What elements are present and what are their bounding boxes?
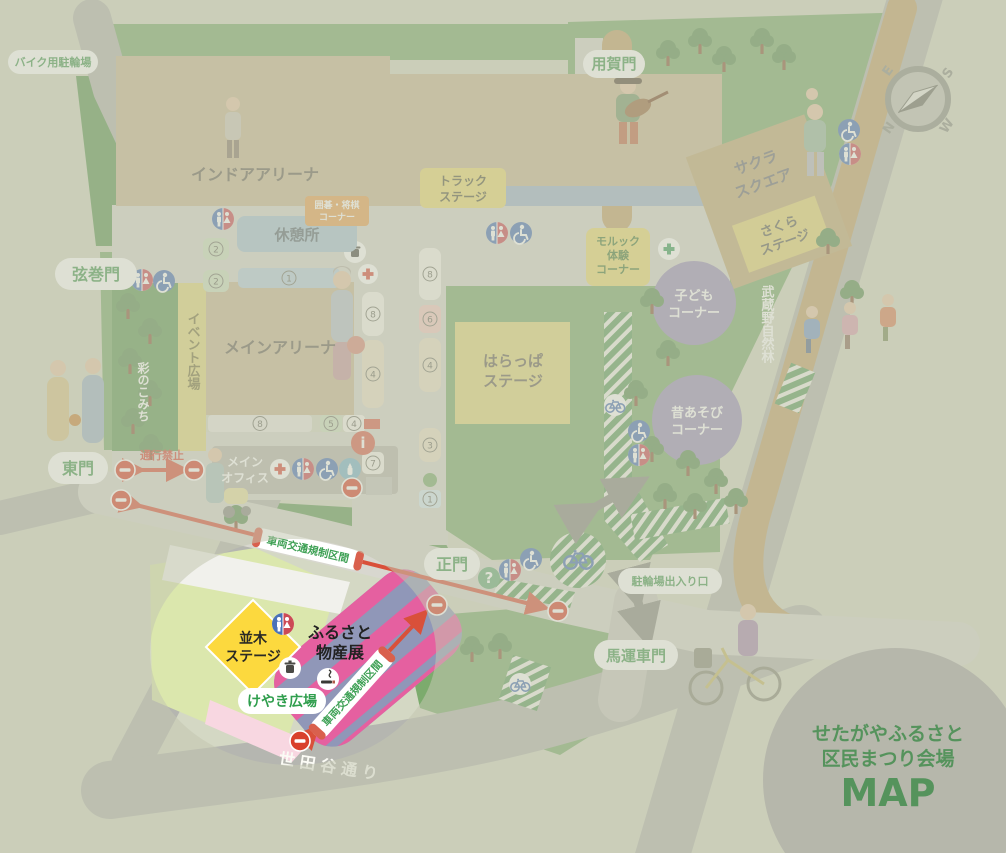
- title-line-1: せたがやふるさと: [812, 722, 964, 745]
- bussanten-label-1: ふるさと: [308, 623, 372, 642]
- title-line-3: MAP: [840, 771, 935, 815]
- namiki-stage-label-2: ステージ: [225, 649, 281, 665]
- keyaki-plaza-pill: けやき広場: [238, 688, 326, 714]
- title-line-2: 区民まつり会場: [821, 747, 954, 770]
- toilet-icon: [272, 613, 294, 635]
- map-canvas: サクラ スクエア さくら ステージ 並木 ステージ ふるさと 物産展: [0, 0, 1006, 853]
- festival-map: サクラ スクエア さくら ステージ 並木 ステージ ふるさと 物産展: [0, 0, 1006, 853]
- smoking-area-icon: [317, 668, 339, 690]
- no-entry-icon: [290, 731, 310, 751]
- svg-text:けやき広場: けやき広場: [247, 693, 317, 710]
- trash-icon: [279, 657, 301, 679]
- namiki-stage-label-1: 並木: [239, 630, 268, 647]
- bussanten-label-2: 物産展: [316, 643, 365, 662]
